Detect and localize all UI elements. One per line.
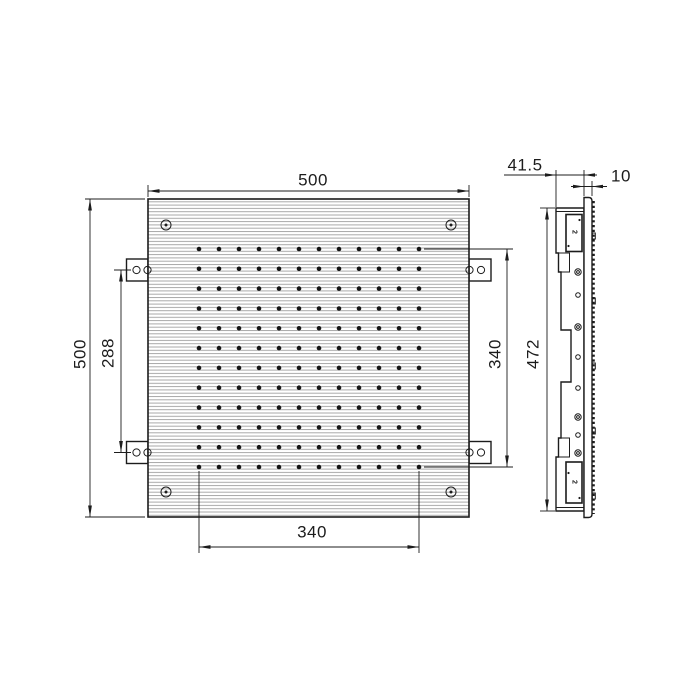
nozzle-dot (337, 286, 342, 291)
nozzle-dot (357, 326, 362, 331)
nozzle-dot (297, 366, 302, 371)
dim-label-mounting-depth: 41.5 (507, 157, 542, 174)
nozzle-dot (277, 247, 282, 252)
nozzle-dot (397, 267, 402, 272)
nozzle-dot (277, 425, 282, 430)
nozzle-dot (357, 425, 362, 430)
nozzle-dot (237, 306, 242, 311)
dim-label-plate-thickness: 10 (611, 168, 631, 185)
nozzle-dot (297, 306, 302, 311)
nozzle-dot (317, 286, 322, 291)
nozzle-dot (297, 465, 302, 470)
nozzle-dot (377, 405, 382, 410)
nozzle-dot (417, 425, 422, 430)
nozzle-dot (257, 366, 262, 371)
side-marking-top: 2 (570, 230, 577, 234)
nozzle-dot (197, 385, 202, 390)
dim-label-front-width: 500 (298, 172, 328, 189)
nozzle-dot (197, 326, 202, 331)
nozzle-dot (317, 267, 322, 272)
nozzle-dot (297, 445, 302, 450)
front-view (127, 199, 492, 517)
nozzle-dot (337, 247, 342, 252)
nozzle-dot (417, 366, 422, 371)
nozzle-dot (337, 465, 342, 470)
nozzle-dot (197, 306, 202, 311)
shower-plate-front (148, 199, 469, 517)
nozzle-dot (217, 366, 222, 371)
nozzle-dot (257, 425, 262, 430)
nozzle-dot (397, 385, 402, 390)
nozzle-dot (317, 326, 322, 331)
nozzle-dot (317, 465, 322, 470)
nozzle-dot (417, 267, 422, 272)
nozzle-dot (297, 385, 302, 390)
dim-label-body-height: 472 (525, 339, 542, 369)
nozzle-dot (237, 326, 242, 331)
nozzle-dot (237, 385, 242, 390)
nozzle-dot (257, 385, 262, 390)
nozzle-dot (217, 465, 222, 470)
nozzle-dot (297, 346, 302, 351)
nozzle-dot (357, 366, 362, 371)
nozzle-dot (377, 445, 382, 450)
nozzle-dot (237, 286, 242, 291)
nozzle-dot (237, 405, 242, 410)
nozzle-dot (337, 405, 342, 410)
nozzle-dot (397, 425, 402, 430)
nozzle-dot (217, 267, 222, 272)
nozzle-dot (317, 346, 322, 351)
nozzle-dot (277, 465, 282, 470)
nozzle-dot (317, 247, 322, 252)
technical-drawing-page: 500 500 288 340 472 340 41.5 10 2 2 (0, 0, 700, 700)
nozzle-dot (217, 306, 222, 311)
side-view (556, 198, 595, 518)
nozzle-dot (357, 306, 362, 311)
nozzle-dot (237, 346, 242, 351)
nozzle-dot (417, 247, 422, 252)
nozzle-dot (377, 366, 382, 371)
nozzle-dot (397, 346, 402, 351)
nozzle-dot (277, 405, 282, 410)
nozzle-dot (397, 465, 402, 470)
nozzle-dot (357, 405, 362, 410)
nozzle-dot (357, 286, 362, 291)
nozzle-dot (397, 286, 402, 291)
nozzle-dot (257, 267, 262, 272)
nozzle-dot (217, 346, 222, 351)
nozzle-dot (377, 306, 382, 311)
nozzle-dot (317, 306, 322, 311)
nozzle-dot (337, 326, 342, 331)
nozzle-dot (217, 445, 222, 450)
nozzle-dot (377, 425, 382, 430)
nozzle-dot (257, 346, 262, 351)
nozzle-dot (197, 405, 202, 410)
nozzle-dot (417, 326, 422, 331)
nozzle-dot (217, 405, 222, 410)
nozzle-dot (297, 267, 302, 272)
nozzle-dot (337, 346, 342, 351)
nozzle-dot (197, 425, 202, 430)
nozzle-dot (417, 306, 422, 311)
nozzle-dot (397, 326, 402, 331)
nozzle-dot (197, 247, 202, 252)
nozzle-dot (377, 247, 382, 252)
nozzle-dot (417, 346, 422, 351)
nozzle-dot (257, 465, 262, 470)
nozzle-dot (257, 247, 262, 252)
nozzle-dot (337, 366, 342, 371)
side-marking-bottom: 2 (570, 480, 577, 484)
nozzle-dot (317, 425, 322, 430)
nozzle-dot (217, 326, 222, 331)
nozzle-dot (277, 286, 282, 291)
nozzle-dot (237, 267, 242, 272)
nozzle-dot (337, 306, 342, 311)
nozzle-dot (357, 465, 362, 470)
nozzle-dot (277, 366, 282, 371)
dim-label-nozzle-height: 340 (487, 339, 504, 369)
nozzle-dot (317, 385, 322, 390)
nozzle-dot (197, 286, 202, 291)
nozzle-dot (417, 445, 422, 450)
mounting-tab-right-top (469, 259, 491, 281)
nozzle-dot (277, 346, 282, 351)
nozzle-dot (217, 286, 222, 291)
nozzle-dot (397, 306, 402, 311)
nozzle-dot (337, 445, 342, 450)
nozzle-dot (197, 267, 202, 272)
nozzle-dot (217, 247, 222, 252)
nozzle-dot (397, 445, 402, 450)
nozzle-dot (377, 346, 382, 351)
nozzle-dot (337, 385, 342, 390)
nozzle-dot (277, 445, 282, 450)
nozzle-dot (237, 465, 242, 470)
nozzle-dot (377, 267, 382, 272)
nozzle-dot (277, 267, 282, 272)
dim-label-front-height: 500 (72, 339, 89, 369)
nozzle-dot (257, 405, 262, 410)
nozzle-dot (357, 385, 362, 390)
nozzle-dot (377, 385, 382, 390)
mounting-tab-right-bottom (469, 442, 491, 464)
nozzle-dot (257, 286, 262, 291)
nozzle-dot (237, 425, 242, 430)
nozzle-dot (317, 445, 322, 450)
nozzle-dot (357, 346, 362, 351)
nozzle-dot (257, 445, 262, 450)
nozzle-dot (417, 385, 422, 390)
nozzle-dot (217, 425, 222, 430)
dim-label-bracket-spacing: 288 (100, 338, 117, 368)
nozzle-dot (397, 366, 402, 371)
nozzle-dot (197, 445, 202, 450)
nozzle-dot (337, 425, 342, 430)
nozzle-dot (377, 326, 382, 331)
nozzle-dot (277, 306, 282, 311)
nozzle-dot (297, 247, 302, 252)
nozzle-dot (417, 286, 422, 291)
nozzle-dot (277, 326, 282, 331)
nozzle-dot (417, 465, 422, 470)
nozzle-dot (257, 326, 262, 331)
nozzle-dot (317, 366, 322, 371)
nozzle-dot (397, 247, 402, 252)
nozzle-dot (237, 445, 242, 450)
nozzle-dot (357, 267, 362, 272)
nozzle-dot (297, 405, 302, 410)
nozzle-dot (237, 366, 242, 371)
nozzle-dot (417, 405, 422, 410)
nozzle-dot (397, 405, 402, 410)
nozzle-dot (297, 326, 302, 331)
nozzle-dot (377, 465, 382, 470)
nozzle-dot (197, 366, 202, 371)
nozzle-dot (297, 425, 302, 430)
nozzle-dot (237, 247, 242, 252)
side-plate (584, 198, 592, 518)
nozzle-dot (217, 385, 222, 390)
nozzle-dot (317, 405, 322, 410)
nozzle-dot (297, 286, 302, 291)
nozzle-dot (257, 306, 262, 311)
nozzle-dot (357, 247, 362, 252)
nozzle-dot (277, 385, 282, 390)
dim-label-nozzle-width: 340 (297, 524, 327, 541)
nozzle-dot (197, 346, 202, 351)
nozzle-dot (377, 286, 382, 291)
nozzle-dot (197, 465, 202, 470)
nozzle-dot (337, 267, 342, 272)
nozzle-dot (357, 445, 362, 450)
